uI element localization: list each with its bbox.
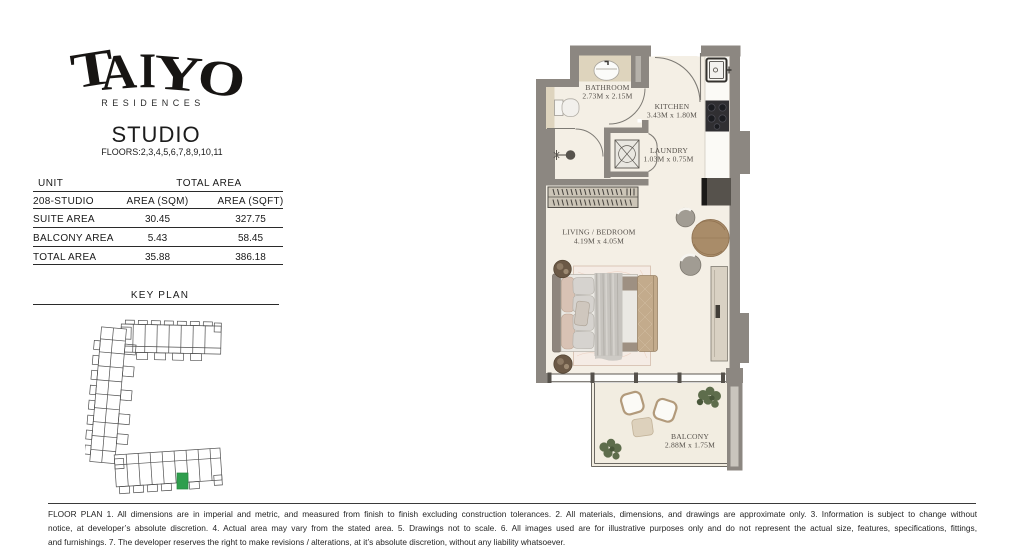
svg-text:4.19M x 4.05M: 4.19M x 4.05M	[574, 237, 624, 246]
svg-text:1.03M x 0.75M: 1.03M x 0.75M	[643, 155, 693, 164]
svg-text:2.73M x 2.15M: 2.73M x 2.15M	[582, 92, 632, 101]
svg-text:2.88M x 1.75M: 2.88M x 1.75M	[665, 441, 715, 450]
svg-text:3.43M x 1.80M: 3.43M x 1.80M	[647, 111, 697, 120]
svg-text:LIVING / BEDROOM: LIVING / BEDROOM	[562, 228, 635, 237]
